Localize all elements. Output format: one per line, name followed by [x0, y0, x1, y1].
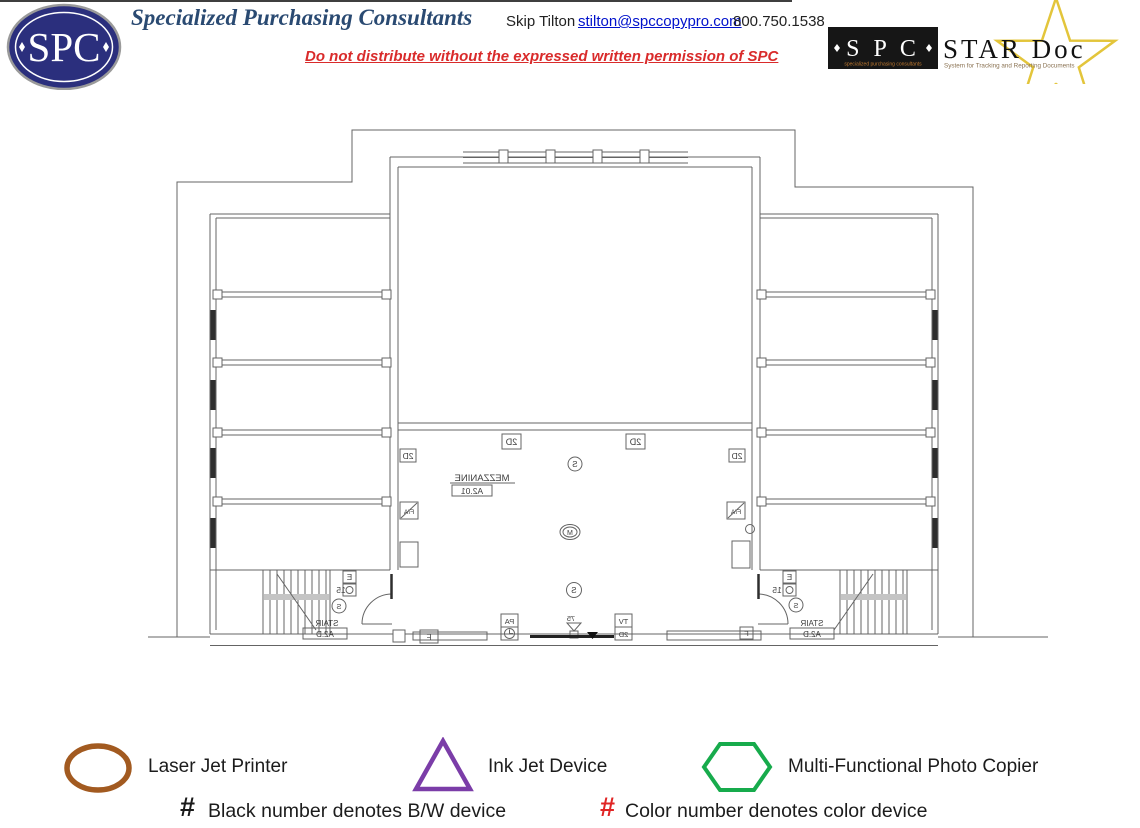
- building-outline: [148, 130, 1048, 646]
- legend-note-color: Color number denotes color device: [625, 800, 927, 823]
- stardoc-tagline: System for Tracking and Reporting Docume…: [944, 63, 1075, 70]
- spc-oval-logo: SPC: [5, 2, 123, 90]
- svg-text:M: M: [567, 530, 573, 537]
- svg-text:2D: 2D: [629, 437, 641, 447]
- contact-name: Skip Tilton: [506, 13, 575, 30]
- svg-text:E: E: [787, 573, 792, 582]
- svg-text:2D: 2D: [618, 630, 628, 639]
- star-doc-logo: S P C specialized purchasing consultants…: [826, 0, 1140, 84]
- left-wing: [210, 214, 391, 634]
- stair-sheet-right: A2.D: [803, 630, 821, 639]
- right-stairs: [834, 570, 907, 634]
- svg-text:F: F: [744, 629, 749, 638]
- stardoc-spc-text: S P C: [846, 36, 920, 62]
- small-device-circle-right: [746, 525, 755, 534]
- mezzanine-room-label: MEZZANINE A2.01: [450, 473, 515, 496]
- svg-text:2D: 2D: [505, 437, 517, 447]
- color-hash-symbol: #: [600, 794, 615, 821]
- legend-label-laser-jet: Laser Jet Printer: [148, 756, 287, 778]
- svg-text:PA: PA: [505, 617, 514, 626]
- m-device-oval: M: [560, 525, 580, 540]
- sheet-number-label: A2.01: [461, 486, 483, 496]
- stair-sheet-left: A2.D: [316, 630, 334, 639]
- s-device-circle-lower: S: [567, 583, 582, 598]
- stardoc-product-name: STAR Doc: [943, 34, 1086, 64]
- smoke-detector-2d-right-wall: 2D: [729, 449, 745, 462]
- s-device-circle-upper: S: [568, 457, 582, 471]
- svg-text:S: S: [336, 602, 341, 611]
- smoke-detector-2d-left-wall: 2D: [400, 449, 416, 462]
- legend-label-ink-jet: Ink Jet Device: [488, 756, 607, 778]
- stair-label-right: STAIR: [800, 619, 823, 628]
- fire-alarm-box-left: F/A: [400, 502, 418, 519]
- svg-text:E: E: [347, 573, 352, 582]
- pa-clock-device: PA: [501, 614, 518, 640]
- bw-hash-symbol: #: [180, 794, 195, 821]
- stardoc-spc-subtitle: specialized purchasing consultants: [844, 62, 922, 68]
- laser-jet-printer-icon: [62, 740, 134, 796]
- f-box-right: F: [740, 627, 753, 639]
- legend-note-bw: Black number denotes B/W device: [208, 800, 506, 823]
- smoke-detector-2d-mid-left: 2D: [502, 434, 521, 449]
- svg-text:75: 75: [567, 614, 575, 623]
- floor-plan-drawing: 2D 2D 2D 2D S MEZZANINE A2.01 F/A F/A M: [140, 122, 1050, 657]
- closet-right: [732, 541, 750, 568]
- company-name: Specialized Purchasing Consultants: [131, 5, 472, 31]
- ink-jet-device-icon: [412, 737, 474, 793]
- stair-label-left: STAIR: [315, 619, 338, 628]
- email-link[interactable]: stilton@spccopypro.com: [578, 13, 742, 30]
- tv-2d-device: TV 2D: [615, 614, 632, 640]
- svg-text:15: 15: [772, 585, 782, 595]
- smoke-detector-2d-mid-right: 2D: [626, 434, 645, 449]
- central-hall-walls: [390, 157, 760, 570]
- svg-text:S: S: [793, 601, 798, 610]
- photo-copier-icon: [700, 740, 774, 794]
- svg-text:F/A: F/A: [403, 509, 414, 516]
- mezzanine-label: MEZZANINE: [455, 473, 510, 484]
- counter-left: [413, 632, 487, 640]
- svg-text:S: S: [571, 586, 576, 595]
- svg-text:F: F: [426, 633, 431, 642]
- svg-text:2D: 2D: [403, 451, 414, 461]
- svg-text:TV: TV: [619, 617, 629, 626]
- phone-number: 800.750.1538: [733, 13, 825, 30]
- svg-text:15: 15: [336, 585, 346, 595]
- svg-text:S: S: [572, 460, 577, 469]
- closet-left: [400, 542, 418, 567]
- logo-text: SPC: [28, 24, 101, 70]
- fire-alarm-box-right: F/A: [727, 502, 745, 519]
- left-door: [362, 574, 405, 642]
- legend-label-copier: Multi-Functional Photo Copier: [788, 756, 1038, 778]
- svg-text:2D: 2D: [732, 451, 743, 461]
- svg-text:F/A: F/A: [730, 509, 741, 516]
- disclaimer-text: Do not distribute without the expressed …: [305, 48, 778, 65]
